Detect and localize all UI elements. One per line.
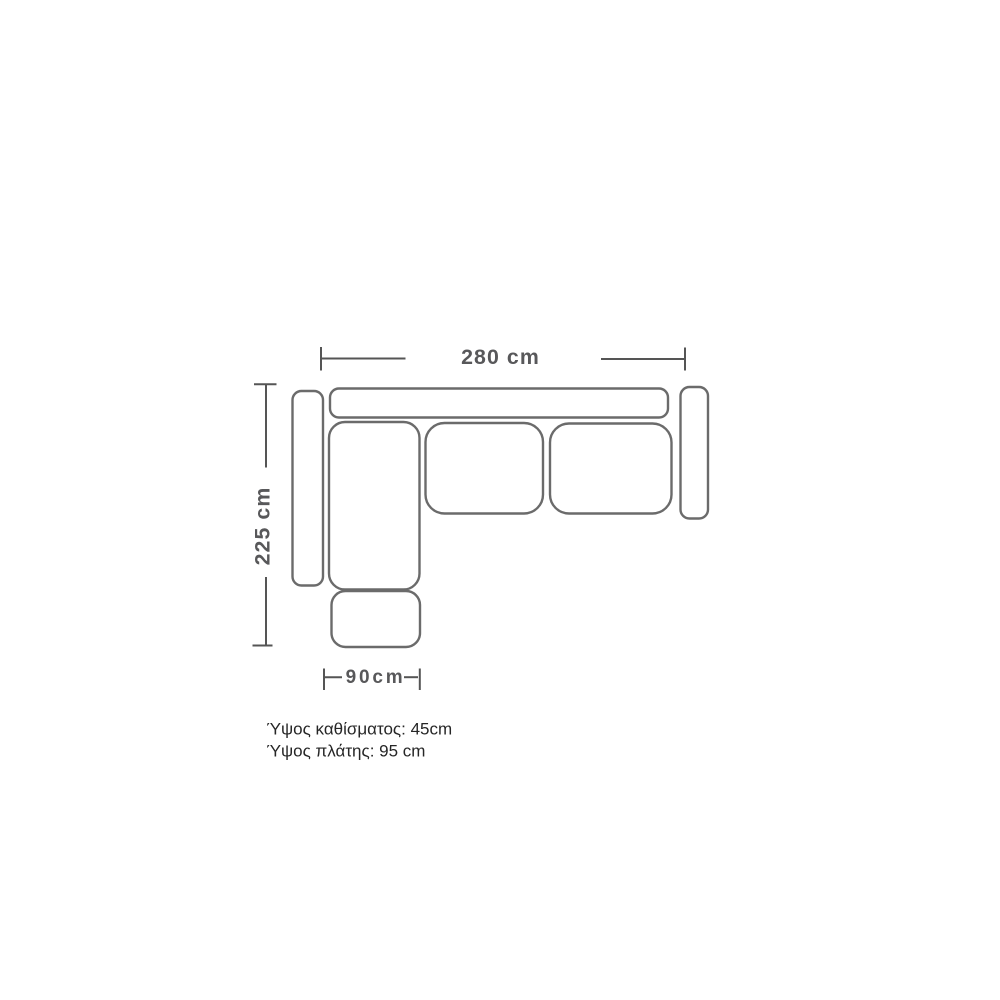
svg-text:Ύψος καθίσματος: 45cm: Ύψος καθίσματος: 45cm [267, 719, 453, 738]
svg-text:225 cm: 225 cm [251, 487, 275, 566]
svg-text:90cm: 90cm [346, 667, 406, 688]
svg-text:Ύψος πλάτης: 95 cm: Ύψος πλάτης: 95 cm [267, 741, 426, 760]
svg-text:280 cm: 280 cm [461, 345, 540, 369]
